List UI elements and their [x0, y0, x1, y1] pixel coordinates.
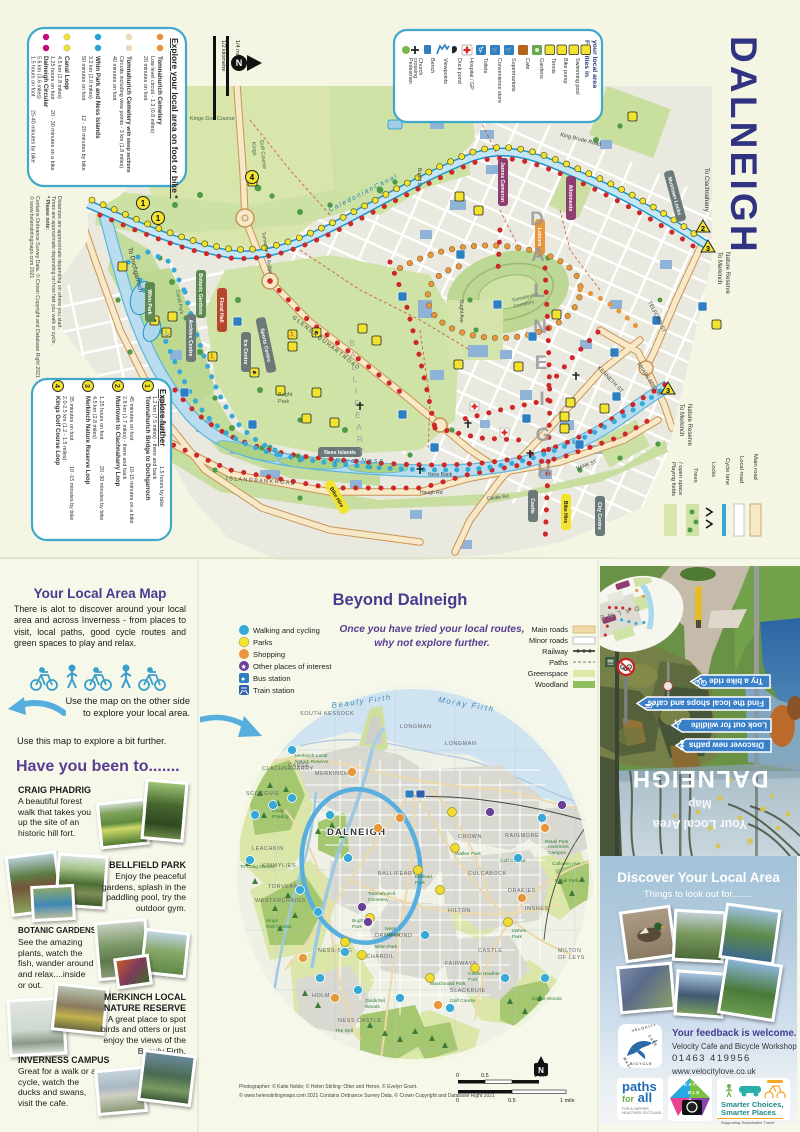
svg-text:Culloden Ave: Culloden Ave	[552, 861, 581, 867]
svg-text:Find the local shops and cafes: Find the local shops and cafes	[647, 699, 764, 708]
svg-text:WESTERCRAIGS: WESTERCRAIGS	[255, 898, 306, 904]
svg-text:Times are approximate dependin: Times are approximate depending on how f…	[50, 196, 56, 345]
svg-text:To Merkinch: To Merkinch	[716, 252, 722, 284]
svg-text:25-40 minutes by bike: 25-40 minutes by bike	[30, 110, 36, 163]
svg-text:Kings: Kings	[266, 918, 279, 924]
svg-text:Try a bike ride: Try a bike ride	[709, 677, 763, 686]
svg-text:Tomnahurich Bridge to Dochgarr: Tomnahurich Bridge to Dochgarroch	[144, 396, 150, 501]
svg-text:To Craig Dunain: To Craig Dunain	[240, 864, 275, 870]
svg-text:4.5 km (2.8 miles): 4.5 km (2.8 miles)	[91, 396, 97, 439]
svg-text:why not explore further.: why not explore further.	[374, 638, 489, 649]
svg-text:B L E: B L E	[688, 1090, 699, 1095]
svg-text:* Please note:: * Please note:	[44, 196, 50, 230]
svg-text:Merkinch Nature Reserve Loop: Merkinch Nature Reserve Loop	[84, 396, 90, 485]
svg-text:HILTON: HILTON	[448, 908, 471, 914]
svg-text:2.8 km (1.7 miles) - there and: 2.8 km (1.7 miles) - there and back	[121, 396, 127, 480]
svg-text:Woods: Woods	[365, 1004, 380, 1010]
svg-text:Merkinch Local: Merkinch Local	[295, 753, 327, 759]
svg-text:0.5: 0.5	[508, 1098, 516, 1104]
svg-text:TORVEAN: TORVEAN	[268, 884, 298, 890]
svg-text:3.2 km (2.0 miles): 3.2 km (2.0 miles)	[87, 56, 93, 99]
svg-text:Botanic Gardens: Botanic Gardens	[197, 273, 203, 315]
svg-text:Islands: Islands	[385, 932, 401, 938]
svg-text:⛹: ⛹	[209, 353, 216, 361]
svg-text:Ness: Ness	[385, 926, 397, 932]
svg-text:E: E	[535, 353, 548, 374]
svg-text:Toilets: Toilets	[482, 58, 488, 74]
svg-text:LEACHKIN: LEACHKIN	[252, 846, 284, 852]
svg-text:Muirtown to Clachnaharry Loop: Muirtown to Clachnaharry Loop	[114, 396, 120, 487]
svg-text:20 -30 minutes by bike: 20 -30 minutes by bike	[98, 466, 104, 520]
svg-text:1.5 hours by bike: 1.5 hours by bike	[158, 466, 164, 507]
svg-text:L: L	[352, 362, 357, 372]
svg-text:⛹: ⛹	[289, 331, 296, 339]
svg-text:V E L O C I T Y: V E L O C I T Y	[631, 1024, 657, 1033]
svg-text:SOUTH KESSOCK: SOUTH KESSOCK	[300, 711, 354, 717]
svg-text:Park: Park	[352, 924, 362, 930]
svg-text:1.25 hours on foot: 1.25 hours on foot	[98, 396, 104, 440]
svg-text:Ness Bank: Ness Bank	[428, 472, 453, 478]
svg-text:Golf Course: Golf Course	[450, 998, 476, 1004]
svg-text:2.0-2.5 km (1.2 - 1.5 miles): 2.0-2.5 km (1.2 - 1.5 miles)	[61, 396, 67, 461]
svg-text:Map: Map	[689, 797, 712, 809]
svg-text:Leisure: Leisure	[536, 228, 542, 247]
svg-text:⚑: ⚑	[252, 370, 257, 377]
svg-text:Low level circuit - 1.3 (0.8 m: Low level circuit - 1.3 (0.8 miles)	[149, 56, 155, 133]
svg-text:35 minutes on foot: 35 minutes on foot	[68, 396, 74, 441]
svg-text:Ice Centre: Ice Centre	[242, 339, 248, 364]
svg-text:3 hours on foot: 3 hours on foot	[158, 396, 164, 432]
svg-text:I: I	[355, 386, 357, 396]
svg-text:MacDonald Park: MacDonald Park	[430, 981, 466, 987]
svg-text:Nature Reserve: Nature Reserve	[295, 759, 329, 765]
svg-text:Park: Park	[278, 399, 290, 405]
svg-text:Inshes: Inshes	[512, 928, 527, 934]
svg-text:INSHES: INSHES	[525, 906, 549, 912]
svg-text:45 minutes on foot: 45 minutes on foot	[128, 396, 134, 441]
svg-text:Gardens: Gardens	[538, 58, 544, 79]
svg-text:Viewpoints: Viewpoints	[442, 58, 448, 84]
svg-text:Whin Park and Ness Islands: Whin Park and Ness Islands	[94, 56, 101, 139]
svg-text:Local road: Local road	[738, 456, 744, 483]
svg-text:4: 4	[250, 173, 255, 182]
svg-text:A: A	[356, 422, 362, 432]
svg-text:Guldichel: Guldichel	[365, 998, 385, 1004]
svg-text:Look out for wildlife: Look out for wildlife	[690, 721, 767, 730]
svg-text:Discover new paths: Discover new paths	[688, 741, 764, 750]
svg-text:40 minutes on foot: 40 minutes on foot	[111, 56, 117, 101]
svg-text:3: 3	[83, 384, 90, 388]
svg-text:10 -15 minutes by bike: 10 -15 minutes by bike	[68, 466, 74, 520]
svg-text:Canal Loop: Canal Loop	[63, 56, 70, 90]
svg-text:Bught Dr: Bught Dr	[416, 168, 422, 188]
svg-text:H: H	[537, 461, 551, 482]
svg-text:Tennis: Tennis	[550, 58, 556, 74]
svg-text:Photographer: © Katie Noble; ©: Photographer: © Katie Noble; © Helen Sti…	[239, 1083, 417, 1090]
svg-text:🛒: 🛒	[491, 46, 499, 54]
svg-text:Beyond Dalneigh: Beyond Dalneigh	[333, 591, 468, 609]
svg-text:Railway: Railway	[542, 647, 568, 656]
svg-text:20 - 30 minutes on a bike: 20 - 30 minutes on a bike	[49, 110, 55, 171]
svg-text:SLACKBUIE: SLACKBUIE	[450, 988, 486, 994]
svg-text:Parks: Parks	[253, 638, 273, 647]
svg-text:2: 2	[113, 384, 120, 388]
svg-text:Greenspace: Greenspace	[528, 669, 568, 678]
svg-text:10-15 minutes on a bike: 10-15 minutes on a bike	[128, 466, 134, 524]
svg-text:Hospital / GP: Hospital / GP	[468, 58, 474, 90]
svg-text:RAIGMORE: RAIGMORE	[505, 833, 539, 839]
svg-text:LONGMAN: LONGMAN	[445, 741, 476, 747]
svg-text:© www.helenstirlingmaps.com 20: © www.helenstirlingmaps.com 2021	[28, 196, 35, 278]
svg-text:Phadrig: Phadrig	[272, 814, 289, 820]
svg-text:Your Local Area: Your Local Area	[652, 817, 748, 831]
svg-text:K A T I E: K A T I E	[684, 1082, 702, 1087]
svg-text:E: E	[600, 613, 605, 621]
svg-text:Bught: Bught	[352, 918, 365, 924]
svg-text:Whin Park: Whin Park	[375, 944, 398, 950]
svg-text:D: D	[530, 209, 544, 230]
svg-text:0.5: 0.5	[481, 1073, 489, 1079]
svg-text:Circuits including view points: Circuits including view points - 3 km (1…	[118, 56, 124, 168]
svg-text:Park: Park	[415, 880, 425, 886]
svg-text:1: 1	[143, 384, 150, 388]
svg-text:© www.helenstirlingmaps.com 20: © www.helenstirlingmaps.com 2021 Contain…	[239, 1092, 495, 1099]
svg-text:Distances are approximate depe: Distances are approximate depending on w…	[56, 196, 62, 329]
svg-text:your local area: your local area	[591, 40, 598, 88]
svg-text:CASTLE: CASTLE	[478, 948, 503, 954]
svg-text:Cemetery: Cemetery	[368, 897, 389, 903]
svg-text:/ open space: / open space	[677, 462, 683, 495]
svg-text:Duck pond: Duck pond	[456, 58, 462, 84]
svg-text:Bus station: Bus station	[253, 674, 291, 683]
svg-text:L: L	[533, 281, 545, 302]
svg-text:DALNEIGH: DALNEIGH	[631, 765, 768, 792]
svg-text:Golf Course: Golf Course	[266, 924, 292, 930]
svg-text:A: A	[531, 245, 545, 266]
svg-text:●: ●	[241, 676, 245, 683]
svg-text:Convenience store: Convenience store	[496, 58, 502, 103]
svg-text:Bench: Bench	[429, 58, 435, 73]
svg-text:MILTON: MILTON	[558, 948, 581, 954]
svg-text:Whin Park: Whin Park	[146, 289, 152, 314]
svg-text:Castle: Castle	[529, 498, 535, 514]
svg-text:Supermarkets: Supermarkets	[510, 58, 516, 92]
svg-text:Minor roads: Minor roads	[529, 636, 568, 645]
svg-text:1: 1	[141, 199, 146, 208]
svg-text:1/2 kilometre: 1/2 kilometre	[220, 40, 226, 72]
svg-text:3: 3	[666, 386, 670, 395]
svg-text:G: G	[536, 425, 551, 446]
svg-text:Walker Park: Walker Park	[455, 851, 482, 857]
svg-text:Park: Park	[468, 977, 478, 983]
svg-text:Kings Golf Course Loop: Kings Golf Course Loop	[54, 396, 60, 465]
svg-text:Shopping: Shopping	[253, 650, 285, 659]
svg-text:DRAKIES: DRAKIES	[508, 888, 536, 894]
svg-text:Woodland: Woodland	[535, 680, 568, 689]
svg-text:Y: Y	[358, 446, 364, 456]
svg-text:Other places of interest: Other places of interest	[253, 662, 332, 671]
svg-text:Bike pump: Bike pump	[562, 58, 568, 83]
svg-text:4.5 km (2.8 miles): 4.5 km (2.8 miles)	[56, 56, 62, 99]
svg-text:Haugh Rd: Haugh Rd	[420, 490, 443, 496]
svg-text:Dalneigh Circular: Dalneigh Circular	[42, 56, 49, 108]
svg-text:CLACHNAHARRY: CLACHNAHARRY	[262, 766, 314, 772]
svg-text:Bike Hire: Bike Hire	[562, 501, 568, 524]
svg-text:1 mile: 1 mile	[560, 1098, 575, 1104]
svg-text:3: 3	[706, 244, 710, 253]
svg-text:E: E	[355, 410, 361, 420]
svg-text:Nature Reserve: Nature Reserve	[686, 404, 692, 447]
svg-text:1 km: 1 km	[534, 1073, 546, 1079]
svg-text:CROWN: CROWN	[458, 834, 482, 840]
svg-text:Daviot Woods: Daviot Woods	[532, 996, 562, 1002]
svg-text:2: 2	[701, 224, 705, 233]
svg-text:Retail Park: Retail Park	[555, 878, 579, 884]
svg-text:Main roads: Main roads	[531, 625, 568, 634]
svg-text:Cycle lane: Cycle lane	[724, 458, 730, 485]
svg-text:Inverness: Inverness	[548, 844, 569, 850]
svg-text:Park: Park	[512, 934, 522, 940]
svg-text:12 - 20 minutes by bike: 12 - 20 minutes by bike	[80, 115, 86, 171]
svg-text:Paths: Paths	[549, 658, 568, 667]
svg-text:1: 1	[156, 214, 161, 223]
svg-text:Allotments: Allotments	[567, 185, 573, 212]
svg-text:50 minutes on foot: 50 minutes on foot	[80, 56, 86, 101]
svg-text:MERKINCH: MERKINCH	[315, 771, 349, 777]
svg-text:Playing fields: Playing fields	[670, 462, 676, 496]
svg-text:Campus: Campus	[548, 850, 566, 856]
svg-text:R: R	[357, 434, 363, 444]
svg-text:DALNEIGH: DALNEIGH	[723, 36, 764, 255]
svg-text:NESS CASTLE: NESS CASTLE	[338, 1018, 382, 1024]
svg-text:F: F	[354, 398, 359, 408]
svg-text:James Cameron: James Cameron	[499, 162, 505, 202]
svg-text:HOLM: HOLM	[312, 993, 330, 999]
svg-text:I: I	[539, 389, 544, 410]
svg-text:Tomnahurich Cemetery: Tomnahurich Cemetery	[156, 56, 163, 125]
svg-text:★: ★	[241, 663, 247, 671]
svg-text:1.2 km (7.5 miles) - there and: 1.2 km (7.5 miles) - there and back	[151, 396, 157, 480]
svg-text:Kings Golf Course: Kings Golf Course	[190, 116, 235, 122]
svg-text:N: N	[236, 58, 243, 68]
svg-text:Once you have tried your local: Once you have tried your local routes,	[339, 624, 524, 635]
svg-text:⚓: ⚓	[163, 329, 170, 337]
svg-text:Cafe: Cafe	[524, 58, 530, 69]
svg-text:Trees: Trees	[692, 468, 698, 483]
svg-text:LONGMAN: LONGMAN	[400, 724, 431, 730]
svg-text:City Centre: City Centre	[596, 502, 602, 530]
svg-text:SCORGUIE: SCORGUIE	[246, 791, 280, 797]
svg-text:R i v e r N e s s: R i v e r N e s s	[335, 458, 383, 465]
svg-text:Bellfield: Bellfield	[415, 874, 432, 880]
svg-text:4: 4	[53, 384, 60, 388]
svg-text:N: N	[533, 317, 547, 338]
svg-text:0: 0	[456, 1073, 459, 1079]
svg-text:To Clachnaharry: To Clachnaharry	[703, 168, 709, 212]
svg-text:OF LEYS: OF LEYS	[558, 955, 585, 961]
svg-text:BALLIFEARY: BALLIFEARY	[378, 871, 417, 877]
svg-text:Train station: Train station	[253, 686, 295, 695]
svg-text:Bught: Bught	[278, 392, 293, 398]
svg-text:The Dell: The Dell	[335, 1028, 353, 1034]
svg-text:Bught Ave: Bught Ave	[458, 300, 464, 323]
svg-text:Walking and cycling: Walking and cycling	[253, 626, 320, 635]
svg-text:Explore your local area on foo: Explore your local area on foot or bike …	[170, 38, 180, 199]
svg-text:Ness Islands: Ness Islands	[324, 450, 356, 456]
svg-text:To Merkinch: To Merkinch	[678, 404, 684, 436]
svg-text:1.5 hours on foot: 1.5 hours on foot	[30, 56, 36, 97]
svg-text:Tomnahurich: Tomnahurich	[368, 891, 396, 897]
svg-text:Contains Ordnance Survey Data.: Contains Ordnance Survey Data. © Crown C…	[34, 196, 41, 378]
svg-text:Floral Hall: Floral Hall	[218, 297, 224, 323]
svg-text:Locks: Locks	[710, 462, 716, 477]
svg-text:CULCABOCK: CULCABOCK	[468, 871, 507, 877]
svg-text:Swimming pool: Swimming pool	[574, 58, 580, 95]
svg-text:Church: Church	[417, 58, 423, 75]
svg-text:B: B	[349, 338, 355, 348]
svg-text:Nature Reserve: Nature Reserve	[724, 252, 730, 295]
svg-text:B I C Y C L E: B I C Y C L E	[630, 1062, 652, 1066]
svg-text:Tomnahurich Cemetery with stee: Tomnahurich Cemetery with steep sections	[125, 56, 132, 173]
svg-text:🛒: 🛒	[505, 46, 513, 54]
svg-text:A: A	[350, 350, 356, 360]
svg-text:⚥: ⚥	[478, 46, 484, 54]
svg-text:20 minutes on foot: 20 minutes on foot	[142, 56, 148, 101]
svg-text:Archive Centre: Archive Centre	[187, 320, 193, 357]
svg-text:L: L	[353, 374, 358, 384]
svg-text:Main road: Main road	[752, 454, 758, 480]
